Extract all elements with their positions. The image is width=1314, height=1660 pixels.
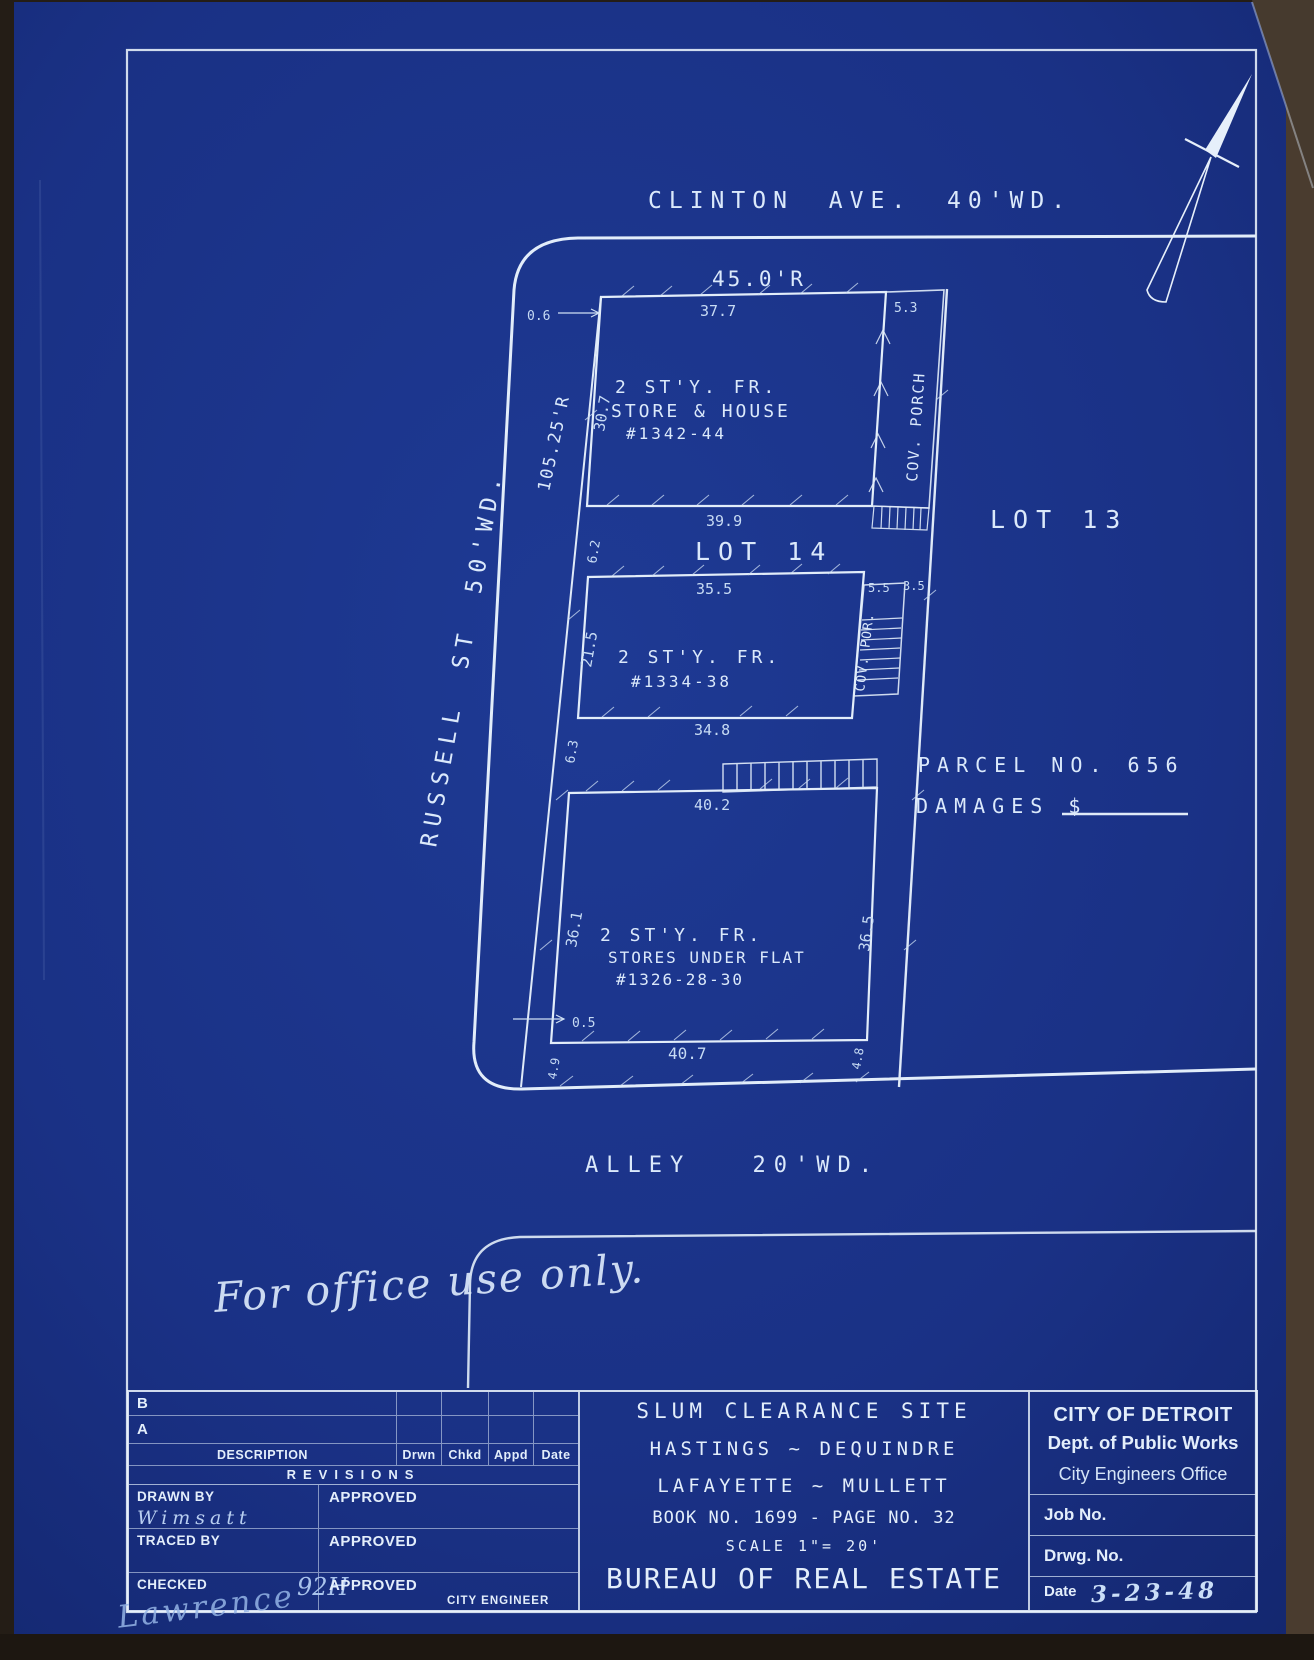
job-no-field: Job No.: [1030, 1495, 1256, 1537]
lot-13-label: LOT 13: [990, 505, 1128, 534]
agency-office: City Engineers Office: [1030, 1464, 1256, 1485]
revision-col-chkd: Chkd: [442, 1444, 489, 1465]
agency-city: CITY OF DETROIT: [1030, 1404, 1256, 1427]
b3-line1: 2 ST'Y. FR.: [600, 925, 763, 946]
b1-line3: #1342-44: [626, 424, 727, 443]
date-field: Date 3-23-48: [1030, 1577, 1256, 1610]
b2-dim-top: 35.5: [696, 580, 732, 598]
title-block: B A DESCRIPTION Drwn Chkd Appd Date REVI…: [127, 1390, 1258, 1612]
revision-header-row: DESCRIPTION Drwn Chkd Appd Date: [129, 1444, 578, 1466]
approved-label-3: APPROVED: [329, 1577, 578, 1594]
revision-and-signature-panel: B A DESCRIPTION Drwn Chkd Appd Date REVI…: [129, 1392, 580, 1610]
date-label: Date: [1044, 1583, 1077, 1600]
checked-row: CHECKED 92H Lawrence APPROVED CITY ENGIN…: [129, 1573, 578, 1610]
city-engineer-label: CITY ENGINEER: [447, 1595, 549, 1607]
b3-line3: #1326-28-30: [616, 970, 744, 989]
b3-dim-offset: 0.5: [572, 1016, 595, 1031]
b1-line2: STORE & HOUSE: [611, 401, 791, 422]
b2-dim-porch2: 3.5: [903, 579, 925, 593]
lot-frontage-dim: 45.0'R: [712, 267, 806, 291]
revision-row-a: A: [129, 1416, 578, 1444]
project-book-page: BOOK NO. 1699 - PAGE NO. 32: [580, 1508, 1028, 1528]
project-line2: HASTINGS ~ DEQUINDRE: [580, 1438, 1028, 1460]
project-line1: SLUM CLEARANCE SITE: [580, 1399, 1028, 1423]
project-title-panel: SLUM CLEARANCE SITE HASTINGS ~ DEQUINDRE…: [580, 1392, 1030, 1610]
b1-dim-offset: 0.6: [527, 309, 550, 324]
b1-dim-porch: 5.3: [894, 301, 917, 316]
agency-dept: Dept. of Public Works: [1030, 1432, 1256, 1454]
revisions-title: REVISIONS: [129, 1466, 578, 1485]
b1-line1: 2 ST'Y. FR.: [615, 377, 778, 398]
b2-dim-bottom: 34.8: [694, 721, 730, 739]
revision-letter-b: B: [129, 1392, 397, 1415]
traced-by-label: TRACED BY: [137, 1533, 318, 1548]
revision-row-b: B: [129, 1392, 578, 1416]
parcel-number: PARCEL NO. 656: [918, 753, 1185, 777]
project-line3: LAFAYETTE ~ MULLETT: [580, 1475, 1028, 1497]
drawn-by-value: Wimsatt: [137, 1507, 318, 1529]
b3-dim-bottom: 40.7: [668, 1044, 707, 1063]
revision-col-date: Date: [534, 1444, 578, 1465]
damages-label: DAMAGES $: [916, 794, 1087, 818]
revision-col-drwn: Drwn: [397, 1444, 442, 1465]
b1-dim-bottom: 39.9: [706, 512, 742, 530]
backdrop-right-strip: [1286, 0, 1314, 1660]
revision-col-description: DESCRIPTION: [129, 1444, 397, 1465]
agency-panel: CITY OF DETROIT Dept. of Public Works Ci…: [1030, 1392, 1256, 1610]
drawn-by-label: DRAWN BY: [137, 1489, 318, 1504]
street-name-top: CLINTON AVE. 40'WD.: [648, 188, 1072, 214]
bureau-title: BUREAU OF REAL ESTATE: [580, 1562, 1028, 1595]
backdrop-bottom-strip: [0, 1634, 1314, 1660]
b2-line1: 2 ST'Y. FR.: [618, 647, 781, 668]
b2-line2: #1334-38: [631, 672, 732, 691]
b3-line2: STORES UNDER FLAT: [608, 948, 806, 967]
lot-14-label: LOT 14: [695, 537, 833, 566]
approved-label-1: APPROVED: [329, 1489, 578, 1506]
b3-dim-top: 40.2: [694, 796, 730, 814]
revision-col-appd: Appd: [489, 1444, 534, 1465]
approved-label-2: APPROVED: [329, 1533, 578, 1550]
blueprint-scan: CLINTON AVE. 40'WD. RUSSELL ST 50'WD. AL…: [0, 0, 1314, 1660]
date-value: 3-23-48: [1090, 1577, 1218, 1608]
b2-dim-porch: 5.5: [868, 581, 890, 595]
drawn-by-row: DRAWN BY Wimsatt APPROVED: [129, 1485, 578, 1529]
b1-dim-top: 37.7: [700, 302, 736, 320]
street-name-bottom: ALLEY 20'WD.: [585, 1153, 880, 1178]
drwg-no-field: Drwg. No.: [1030, 1536, 1256, 1577]
project-scale: SCALE 1"= 20': [580, 1537, 1028, 1555]
revision-letter-a: A: [129, 1416, 397, 1443]
traced-by-row: TRACED BY APPROVED: [129, 1529, 578, 1573]
